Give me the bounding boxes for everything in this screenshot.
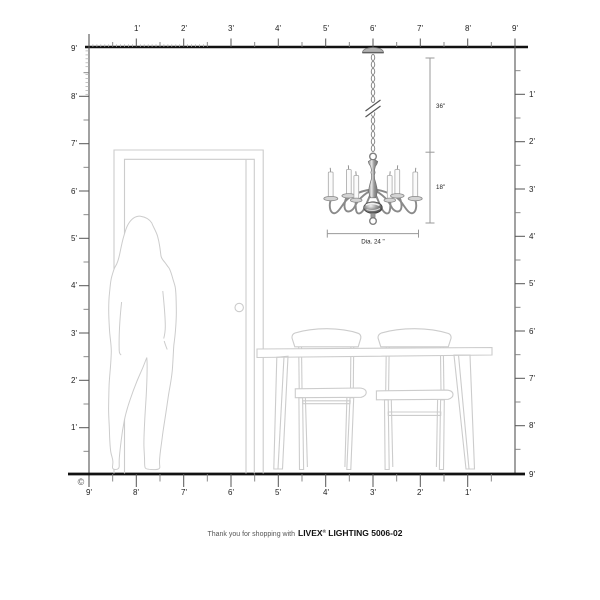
svg-text:4': 4': [71, 281, 77, 290]
svg-text:4': 4': [529, 232, 535, 241]
svg-text:7': 7': [417, 24, 423, 33]
svg-text:6': 6': [370, 24, 376, 33]
svg-text:8': 8': [529, 421, 535, 430]
svg-text:3': 3': [529, 185, 535, 194]
svg-text:3': 3': [71, 329, 77, 338]
svg-text:36": 36": [436, 103, 445, 110]
svg-text:LIVEX® LIGHTING 5006-02: LIVEX® LIGHTING 5006-02: [298, 528, 403, 538]
svg-text:5': 5': [323, 24, 329, 33]
svg-text:1': 1': [134, 24, 140, 33]
svg-text:1': 1': [529, 90, 535, 99]
svg-text:9': 9': [71, 44, 77, 53]
svg-text:5': 5': [71, 234, 77, 243]
svg-text:2': 2': [181, 24, 187, 33]
svg-text:4': 4': [275, 24, 281, 33]
svg-text:7': 7': [71, 139, 77, 148]
svg-text:18": 18": [436, 184, 445, 191]
svg-text:Thank you for shopping with: Thank you for shopping with: [207, 531, 295, 538]
svg-text:4': 4': [323, 488, 329, 497]
svg-text:1': 1': [71, 423, 77, 432]
svg-text:6': 6': [71, 187, 77, 196]
svg-text:6': 6': [529, 327, 535, 336]
svg-text:8': 8': [71, 92, 77, 101]
svg-text:8': 8': [133, 488, 139, 497]
svg-text:7': 7': [529, 374, 535, 383]
svg-text:1': 1': [465, 488, 471, 497]
svg-text:6': 6': [228, 488, 234, 497]
svg-text:8': 8': [465, 24, 471, 33]
svg-text:3': 3': [370, 488, 376, 497]
svg-text:©: ©: [78, 477, 85, 487]
svg-text:9': 9': [86, 488, 92, 497]
svg-text:5': 5': [529, 279, 535, 288]
svg-text:2': 2': [71, 376, 77, 385]
svg-text:2': 2': [417, 488, 423, 497]
svg-text:9': 9': [529, 470, 535, 479]
svg-text:7': 7': [181, 488, 187, 497]
svg-text:9': 9': [512, 24, 518, 33]
svg-text:5': 5': [275, 488, 281, 497]
svg-text:2': 2': [529, 137, 535, 146]
svg-text:Dia. 24 ": Dia. 24 ": [361, 239, 385, 246]
svg-text:3': 3': [228, 24, 234, 33]
